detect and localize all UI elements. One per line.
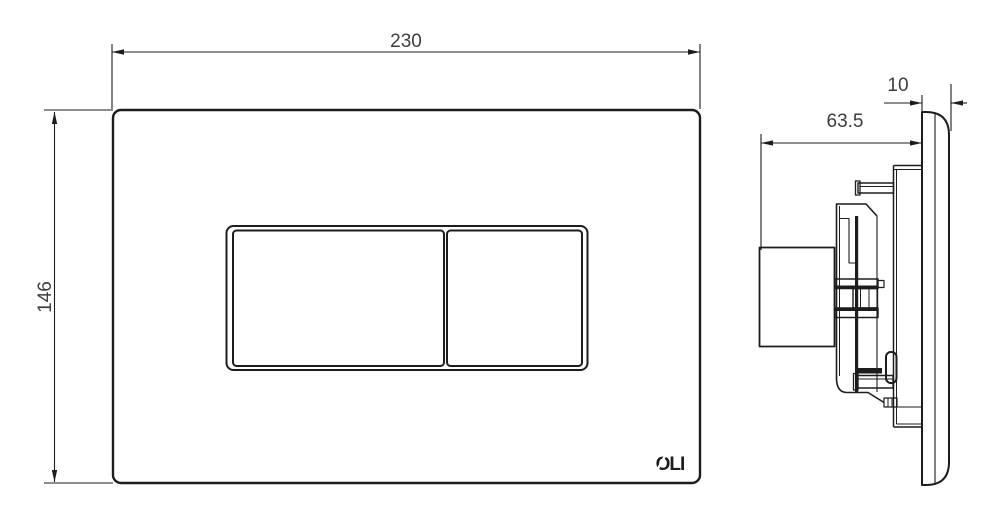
width-arrowhead-right (688, 49, 700, 54)
housing-step-line (840, 219, 856, 264)
housing-guide-bar (855, 216, 858, 392)
thickness-dimension-label: 10 (887, 75, 908, 96)
thickness-dimension: 10 (884, 75, 967, 131)
thickness-arrowhead-left (910, 100, 922, 105)
button-recess-outline (227, 226, 588, 370)
small-flush-button (447, 231, 582, 367)
rod-bottom-flange-band (835, 308, 878, 311)
side-view (760, 112, 950, 485)
flush-plate-outline (113, 110, 700, 483)
top-clip (856, 181, 894, 195)
flush-plate-technical-drawing: OLI 230 146 (0, 0, 991, 516)
width-dimension-label: 230 (390, 31, 422, 52)
screw-body (884, 398, 897, 407)
width-dimension: 230 (112, 31, 700, 109)
side-plate-profile (922, 112, 949, 485)
depth-arrowhead-left (761, 140, 773, 145)
front-view: OLI (113, 110, 700, 483)
screw-detail (884, 398, 897, 407)
depth-dimension: 63.5 (761, 111, 922, 250)
valve-pill (886, 352, 897, 383)
housing-lower-band (856, 368, 882, 374)
height-arrowhead-top (52, 112, 57, 124)
height-dimension: 146 (35, 110, 113, 483)
technical-drawing-page: OLI 230 146 (0, 0, 991, 516)
top-clip-bar (858, 183, 894, 193)
width-arrowhead-left (112, 49, 124, 54)
depth-dimension-label: 63.5 (827, 111, 864, 132)
actuator-box (760, 248, 835, 347)
oli-logo: OLI (656, 454, 685, 475)
thickness-arrowhead-right (951, 100, 963, 105)
depth-arrowhead-right (910, 140, 922, 145)
large-flush-button (233, 231, 444, 367)
height-arrowhead-bottom (52, 470, 57, 482)
height-dimension-label: 146 (35, 281, 56, 313)
